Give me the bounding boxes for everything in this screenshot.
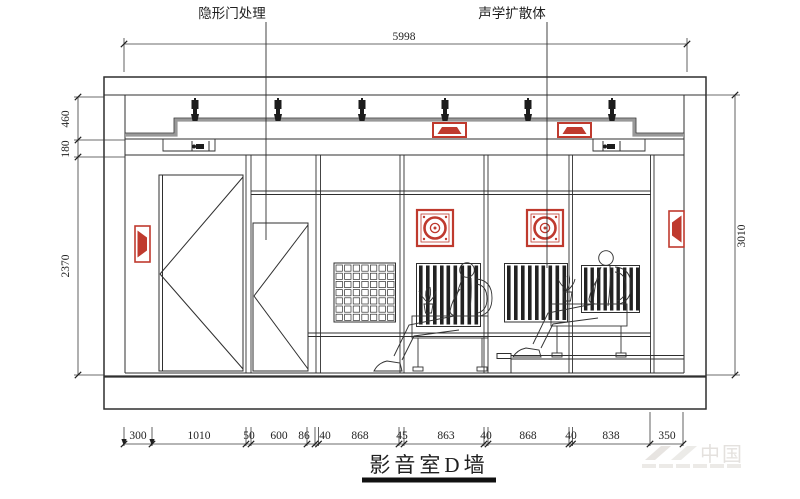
dim-bottom: 350 bbox=[658, 430, 676, 442]
downlight-hanger-icon bbox=[274, 98, 282, 121]
ceiling-speaker-icon bbox=[433, 123, 466, 137]
dim-bottom: 300 bbox=[129, 430, 147, 442]
watermark-logo: 中国 bbox=[642, 443, 744, 468]
dim-bottom: 1010 bbox=[188, 430, 211, 442]
left-surround-speaker-icon bbox=[135, 226, 150, 262]
round-wall-speaker-icon bbox=[527, 210, 563, 246]
dimension-lines bbox=[74, 38, 740, 446]
title-underline bbox=[362, 478, 496, 483]
dim-bottom: 86 bbox=[298, 430, 310, 442]
dim-left-180: 180 bbox=[60, 140, 72, 158]
acoustic-waffle-panel bbox=[334, 263, 396, 322]
dim-bottom: 40 bbox=[319, 430, 331, 442]
hidden-door-side-panel bbox=[253, 223, 308, 371]
callout-acoustic-diffuser: 声学扩散体 bbox=[478, 6, 546, 21]
dim-bottom: 600 bbox=[270, 430, 288, 442]
trough-spotlight-icon bbox=[603, 141, 620, 151]
right-surround-speaker-icon bbox=[669, 211, 684, 247]
dim-left-460: 460 bbox=[60, 110, 72, 128]
dim-bottom: 863 bbox=[437, 430, 455, 442]
dim-bottom: 868 bbox=[519, 430, 537, 442]
downlight-hanger-icons bbox=[191, 98, 616, 121]
dim-overall-width: 5998 bbox=[393, 31, 416, 43]
seated-person-front bbox=[374, 263, 474, 371]
dim-bottom: 838 bbox=[602, 430, 620, 442]
trough-spotlight-icon bbox=[192, 141, 209, 151]
dim-bottom: 45 bbox=[396, 430, 408, 442]
dim-left-2370: 2370 bbox=[60, 254, 72, 277]
riser-platform bbox=[497, 354, 684, 374]
dim-bottom: 40 bbox=[480, 430, 492, 442]
downlight-hanger-icon bbox=[608, 98, 616, 121]
bottom-dimension-values: 300 1010 50 600 86 40 868 45 863 40 868 … bbox=[129, 430, 676, 442]
cad-elevation-sheet: 隐形门处理 声学扩散体 59 bbox=[0, 0, 800, 499]
hidden-door-panel bbox=[159, 175, 243, 371]
drawing-title: 影音室D墙 bbox=[369, 453, 488, 477]
downlight-hanger-icon bbox=[441, 98, 449, 121]
callout-hidden-door: 隐形门处理 bbox=[198, 6, 266, 21]
elevation-drawing: 隐形门处理 声学扩散体 59 bbox=[0, 0, 800, 499]
watermark-text: 中国 bbox=[700, 443, 744, 466]
dim-bottom: 868 bbox=[351, 430, 369, 442]
ceiling-speaker-icon bbox=[558, 123, 591, 137]
dim-bottom: 40 bbox=[565, 430, 577, 442]
slat-diffuser-panel-2 bbox=[505, 264, 568, 323]
dim-bottom: 50 bbox=[243, 430, 255, 442]
downlight-hanger-icon bbox=[191, 98, 199, 121]
dim-overall-height: 3010 bbox=[736, 224, 748, 247]
dimension-ticks bbox=[75, 41, 738, 447]
downlight-hanger-icon bbox=[524, 98, 532, 121]
downlight-hanger-icon bbox=[358, 98, 366, 121]
round-wall-speaker-icon bbox=[417, 210, 453, 246]
